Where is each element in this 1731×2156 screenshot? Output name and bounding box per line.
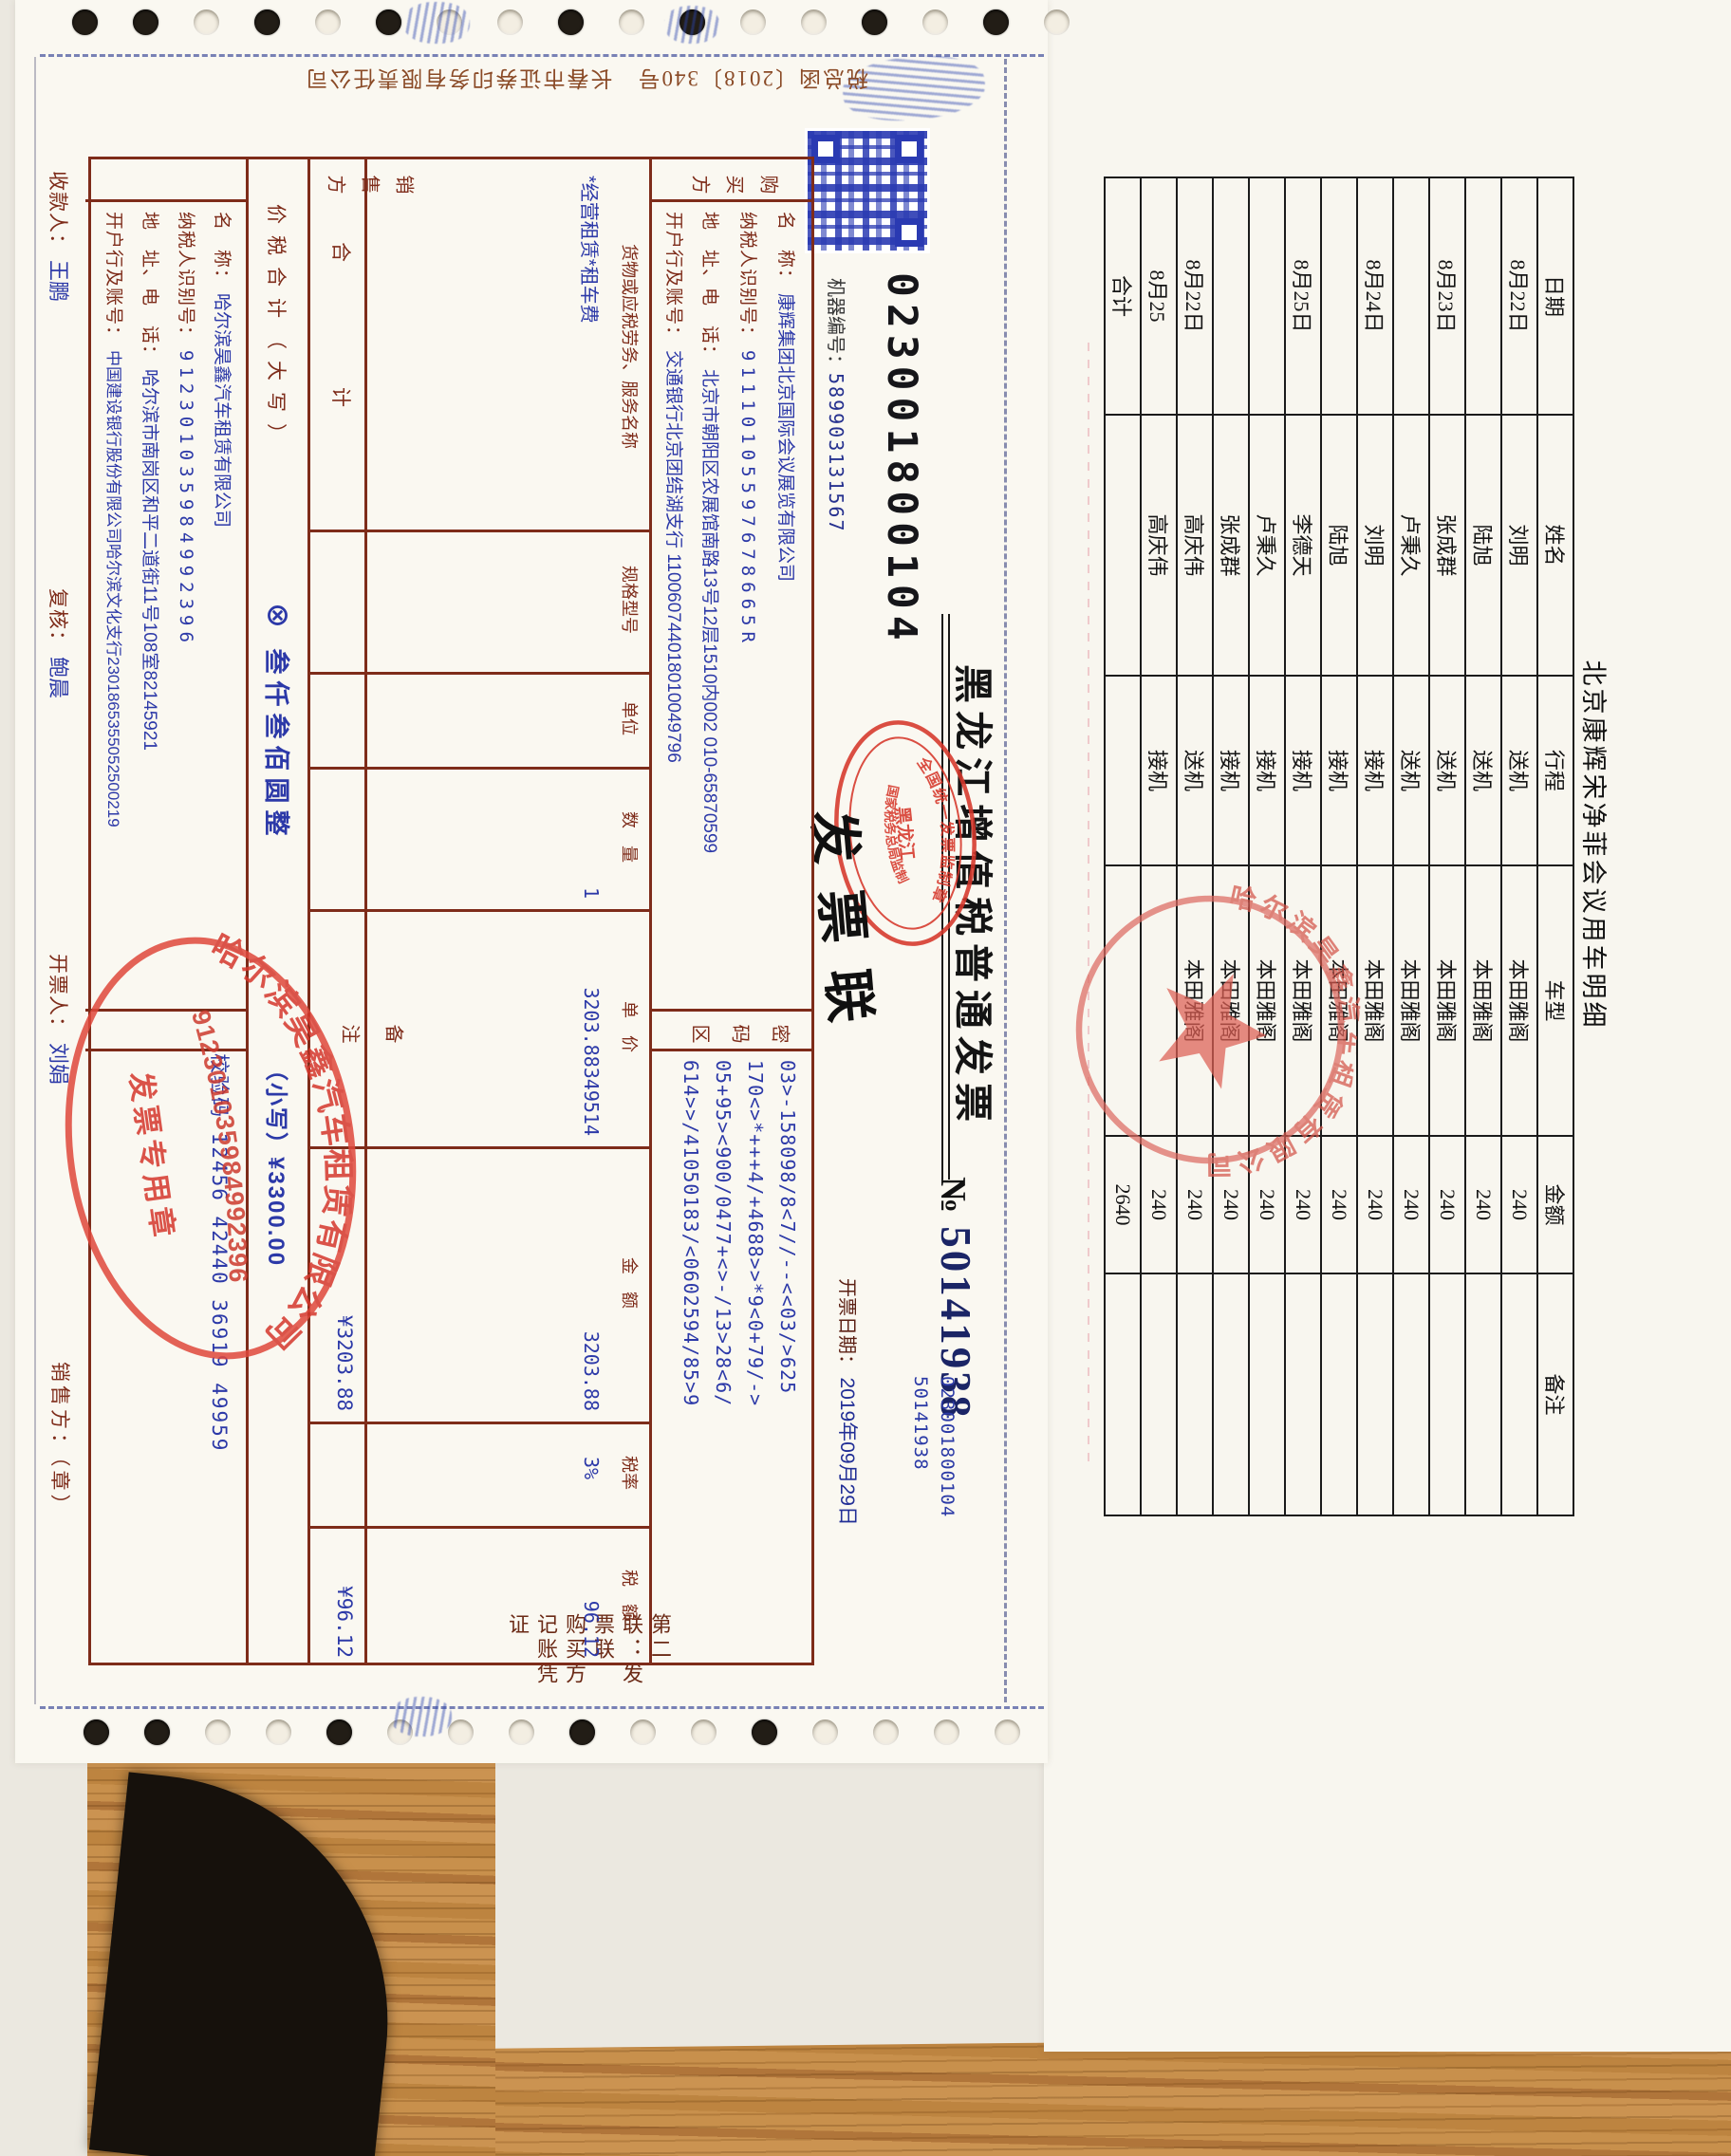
schedule-cell: 陆旭: [1321, 415, 1357, 676]
punch-hole: [983, 9, 1009, 35]
punch-hole: [862, 9, 887, 35]
side-code-2: 50141938: [910, 1376, 931, 1471]
schedule-table: 日期 姓名 行程 车型 金额 备注 8月22日刘明送机本田雅阁240陆旭送机本田…: [1104, 177, 1574, 1516]
buyer-bank: 交通银行北京团结湖支行 110060744018010049796: [663, 350, 683, 763]
seller-bank: 中国建设银行股份有限公司哈尔滨文化支行2301865355052500219: [104, 350, 122, 827]
schedule-cell: 张成群: [1213, 415, 1249, 676]
schedule-header-row: 日期 姓名 行程 车型 金额 备注: [1537, 177, 1573, 1515]
schedule-header-cell: 姓名: [1537, 415, 1573, 676]
punch-hole: [740, 9, 766, 35]
punch-hole: [630, 1719, 656, 1745]
schedule-cell: [1213, 177, 1249, 415]
side-code-1: 023001800104: [937, 1376, 958, 1517]
punch-hole: [254, 9, 280, 35]
schedule-cell: 240: [1429, 1136, 1465, 1273]
schedule-row: 8月22日刘明送机本田雅阁240: [1501, 177, 1537, 1515]
schedule-cell: 李德天: [1285, 415, 1321, 676]
schedule-cell: [1465, 177, 1501, 415]
punch-hole: [934, 1719, 959, 1745]
drawer-name: 刘娟: [47, 1043, 70, 1085]
schedule-cell: 接机: [1321, 676, 1357, 865]
qr-finder-icon: [895, 218, 923, 247]
schedule-cell: 8月22日: [1177, 177, 1213, 415]
punch-hole: [194, 9, 219, 35]
schedule-cell: 送机: [1429, 676, 1465, 865]
company-round-stamp: 哈尔滨昊鑫汽车租赁有限公司: [1049, 868, 1372, 1192]
punch-hole: [266, 1719, 291, 1745]
payee-row: 收款人：王鹏: [45, 171, 75, 302]
items-header-unit: 单位: [618, 671, 642, 766]
ink-smudge: [403, 2, 470, 44]
items-header-rate: 税率: [618, 1421, 642, 1525]
reviewer-name: 鲍晨: [47, 657, 70, 698]
schedule-row: 8月23日张成群送机本田雅阁240: [1429, 177, 1465, 1515]
schedule-cell: [1249, 177, 1285, 415]
grand-total-capital: ⊗ 叁仟叁佰圆整: [260, 603, 297, 843]
schedule-row: 陆旭接机本田雅阁240: [1321, 177, 1357, 1515]
punch-hole: [558, 9, 584, 35]
item-amount: 3203.88: [580, 1145, 603, 1411]
items-header-qty: 数 量: [618, 766, 642, 908]
schedule-cell: 接机: [1357, 676, 1393, 865]
punch-hole: [497, 9, 523, 35]
schedule-cell: 240: [1501, 1136, 1537, 1273]
buyer-bank-label: 开户行及账号：: [663, 212, 683, 344]
schedule-cell: 陆旭: [1465, 415, 1501, 676]
schedule-cell: 8月25日: [1285, 177, 1321, 415]
qr-code: [805, 128, 930, 253]
punch-hole: [922, 9, 948, 35]
punch-hole: [326, 1719, 352, 1745]
seller-bank-label: 开户行及账号：: [103, 212, 123, 344]
seller-name-row: 名 称：哈尔滨昊鑫汽车租赁有限公司: [211, 212, 236, 528]
qr-finder-icon: [895, 135, 923, 163]
schedule-header-cell: 备注: [1537, 1273, 1573, 1515]
schedule-cell: 本田雅阁: [1429, 865, 1465, 1136]
password-line: 614>>/41050183/<0602594/85>9: [675, 1060, 707, 1406]
schedule-cell: [1213, 1273, 1249, 1515]
buyer-name: 康辉集团北京国际会议展览有限公司: [775, 293, 795, 582]
buyer-side-label: 购买方: [671, 164, 785, 196]
items-header-amount: 金 额: [618, 1145, 642, 1421]
schedule-cell: [1141, 1273, 1177, 1515]
schedule-cell: [1393, 1273, 1429, 1515]
tractor-holes-top: [0, 9, 1731, 38]
schedule-row: 8月24日刘明接机本田雅阁240: [1357, 177, 1393, 1515]
buyer-name-label: 名 称：: [775, 212, 795, 288]
schedule-row: 张成群接机本田雅阁240: [1213, 177, 1249, 1515]
punch-hole: [619, 9, 644, 35]
scanned-page: 税总函〔2018〕340号 长春市证券印务有限责任公司 第二联：发票联 购买方记…: [0, 0, 1731, 2156]
ink-smudge: [664, 6, 719, 44]
schedule-cell: 本田雅阁: [1393, 865, 1429, 1136]
punch-hole: [205, 1719, 231, 1745]
dark-object: [89, 1772, 412, 2156]
schedule-cell: [1465, 1273, 1501, 1515]
password-line: 03>-158098/8<7//--<<03/>625: [772, 1060, 804, 1406]
schedule-cell: 8月22日: [1501, 177, 1537, 415]
schedule-row: 陆旭送机本田雅阁240: [1465, 177, 1501, 1515]
schedule-cell: 接机: [1213, 676, 1249, 865]
invoice-landscape: 023001800104 机器编号：589903131567 黑龙江增值税普通发…: [28, 52, 1020, 1703]
schedule-rotated-wrapper: 北京康辉宋净菲会议用车明细 日期 姓名 行程 车型 金额 备注 8: [1099, 169, 1616, 1521]
machine-number-label: 机器编号：: [825, 278, 846, 373]
buyer-address: 北京市朝阳区农展馆南路13号12层1510内002 010-65870599: [699, 369, 719, 853]
issue-date-row: 开票日期： 2019年09月29日: [834, 1278, 863, 1526]
schedule-cell: 卢秉久: [1249, 415, 1285, 676]
punch-hole: [448, 1719, 474, 1745]
schedule-title: 北京康辉宋净菲会议用车明细: [1577, 169, 1614, 1521]
reviewer-row: 复核：鲍晨: [45, 588, 75, 698]
password-line: 05+95><900/0477+<>-/13>28<6/: [707, 1060, 739, 1406]
buyer-address-row: 地 址、电 话：北京市朝阳区农展馆南路13号12层1510内002 010-65…: [698, 212, 724, 853]
schedule-cell: [1177, 1273, 1213, 1515]
item-qty: 1: [580, 766, 603, 899]
schedule-landscape: 北京康辉宋净菲会议用车明细 日期 姓名 行程 车型 金额 备注 8: [1099, 169, 1616, 1521]
punch-hole: [84, 1719, 109, 1745]
schedule-table-body: 8月22日刘明送机本田雅阁240陆旭送机本田雅阁2408月23日张成群送机本田雅…: [1105, 177, 1537, 1515]
schedule-cell: [1105, 415, 1141, 676]
punch-hole: [133, 9, 158, 35]
schedule-cell: [1321, 1273, 1357, 1515]
item-tax: 96.12: [580, 1525, 603, 1658]
invoice-code: 023001800104: [878, 272, 925, 647]
schedule-cell: [1357, 1273, 1393, 1515]
qr-finder-icon: [811, 135, 840, 163]
seller-sign-label: 销售方：（章）: [47, 1362, 75, 1518]
schedule-cell: [1249, 1273, 1285, 1515]
punch-hole: [995, 1719, 1020, 1745]
schedule-cell: [1321, 177, 1357, 415]
wood-desk-bottom: [431, 2035, 1731, 2156]
buyer-address-label: 地 址、电 话：: [699, 212, 719, 363]
schedule-row: 卢秉久接机本田雅阁240: [1249, 177, 1285, 1515]
schedule-cell: 240: [1357, 1136, 1393, 1273]
schedule-cell: 240: [1465, 1136, 1501, 1273]
punch-hole: [315, 9, 341, 35]
total-tax: ¥96.12: [333, 1525, 356, 1658]
schedule-cell: [1429, 1273, 1465, 1515]
grand-total-label: 价税合计（大写）: [263, 204, 291, 455]
schedule-header-cell: 车型: [1537, 865, 1573, 1136]
schedule-row: 8月25高庆伟接机240: [1141, 177, 1177, 1515]
schedule-cell: 接机: [1141, 676, 1177, 865]
schedule-cell: 刘明: [1501, 415, 1537, 676]
buyer-name-row: 名 称：康辉集团北京国际会议展览有限公司: [774, 212, 800, 582]
seller-taxid-row: 纳税人识别号：912301035984992396: [175, 212, 200, 648]
seller-name-label: 名 称：: [212, 212, 232, 288]
reviewer-label: 复核：: [47, 588, 68, 651]
star-icon: [1157, 967, 1273, 1093]
no-symbol: №: [933, 1177, 973, 1213]
issue-date-value: 2019年09月29日: [836, 1377, 858, 1525]
tractor-holes-bottom: [0, 1719, 1731, 1748]
schedule-stamp-wrapper: 哈尔滨昊鑫汽车租赁有限公司: [1049, 868, 1372, 1192]
schedule-cell: 送机: [1501, 676, 1537, 865]
schedule-cell: 送机: [1465, 676, 1501, 865]
perforation-line-bottom: [40, 1706, 1044, 1709]
seller-stamp-taxid: 912301035984992396: [185, 1006, 262, 1288]
schedule-cell: 送机: [1177, 676, 1213, 865]
seller-address-label: 地 址、电 话：: [140, 212, 159, 363]
seller-bank-row: 开户行及账号：中国建设银行股份有限公司哈尔滨文化支行23018653550525…: [102, 212, 128, 827]
schedule-cell: 本田雅阁: [1501, 865, 1537, 1136]
punch-hole: [752, 1719, 777, 1745]
buyer-taxid: 91110105597678665R: [737, 350, 758, 648]
schedule-row: 8月25日李德天接机本田雅阁240: [1285, 177, 1321, 1515]
drawer-row: 开票人：刘娟: [45, 954, 75, 1085]
seller-taxid: 912301035984992396: [176, 350, 196, 648]
schedule-cell: 高庆伟: [1177, 415, 1213, 676]
seller-stamp: 哈尔滨昊鑫汽车租赁有限公司 912301035984992396 发票专用章: [24, 901, 398, 1395]
punch-hole: [1044, 9, 1070, 35]
punch-hole: [569, 1719, 595, 1745]
buyer-bank-row: 开户行及账号：交通银行北京团结湖支行 110060744018010049796: [662, 212, 688, 763]
item-price: 3203.88349514: [580, 908, 603, 1136]
schedule-cell: [1105, 1273, 1141, 1515]
schedule-cell: [1105, 676, 1141, 865]
item-rate: 3%: [580, 1421, 603, 1515]
schedule-cell: 送机: [1393, 676, 1429, 865]
punch-hole: [376, 9, 401, 35]
punch-hole: [873, 1719, 899, 1745]
invoice-rotated-wrapper: 023001800104 机器编号：589903131567 黑龙江增值税普通发…: [28, 52, 1020, 1703]
schedule-cell: 接机: [1249, 676, 1285, 865]
password-area: 03>-158098/8<7//--<<03/>625 170<>*+++4/+…: [675, 1060, 804, 1406]
seller-address-row: 地 址、电 话：哈尔滨市南岗区和平二道街11号108室82145921: [139, 212, 164, 751]
schedule-cell: 8月23日: [1429, 177, 1465, 415]
schedule-cell: 高庆伟: [1141, 415, 1177, 676]
seller-side-label: 销售方: [307, 164, 420, 196]
schedule-cell: 240: [1393, 1136, 1429, 1273]
schedule-header-cell: 日期: [1537, 177, 1573, 415]
schedule-cell: 卢秉久: [1393, 415, 1429, 676]
svg-text:912301035984992396: 912301035984992396: [185, 1006, 262, 1288]
schedule-row: 8月22日高庆伟送机本田雅阁240: [1177, 177, 1213, 1515]
schedule-cell: [1285, 1273, 1321, 1515]
schedule-cell: 合计: [1105, 177, 1141, 415]
password-side-label: 密码区: [669, 1013, 792, 1046]
punch-hole: [72, 9, 98, 35]
machine-number-value: 589903131567: [825, 373, 847, 533]
punch-hole: [801, 9, 827, 35]
items-header-tax: 税 额: [618, 1525, 642, 1665]
schedule-cell: 张成群: [1429, 415, 1465, 676]
schedule-row: 合计2640: [1105, 177, 1141, 1515]
wood-desk-bottom-left: [87, 1757, 495, 2156]
drawer-label: 开票人：: [47, 954, 68, 1037]
schedule-cell: 8月25: [1141, 177, 1177, 415]
items-header-name: 货物或应税劳务、服务名称: [618, 176, 642, 517]
payee-label: 收款人：: [47, 171, 68, 254]
schedule-cell: 8月24日: [1357, 177, 1393, 415]
seller-address: 哈尔滨市南岗区和平二道街11号108室82145921: [140, 369, 159, 751]
seller-name: 哈尔滨昊鑫汽车租赁有限公司: [212, 293, 232, 528]
schedule-header-cell: 金额: [1537, 1136, 1573, 1273]
punch-hole: [691, 1719, 717, 1745]
payee-name: 王鹏: [47, 260, 70, 302]
schedule-header-cell: 行程: [1537, 676, 1573, 865]
items-header-price: 单 价: [618, 908, 642, 1145]
password-line: 170<>*+++4/+4688>>*9<0+79/->: [739, 1060, 772, 1406]
punch-hole: [812, 1719, 838, 1745]
schedule-cell: [1393, 177, 1429, 415]
punch-hole: [144, 1719, 170, 1745]
total-label: 合 计: [327, 242, 356, 436]
seller-stamp-caption: 发票专用章: [123, 1069, 180, 1243]
schedule-cell: [1501, 1273, 1537, 1515]
issue-date-label: 开票日期：: [836, 1278, 857, 1373]
item-name: *经营租赁*租车费: [577, 176, 605, 324]
schedule-cell: 刘明: [1357, 415, 1393, 676]
buyer-taxid-row: 纳税人识别号：91110105597678665R: [736, 212, 762, 648]
schedule-row: 卢秉久送机本田雅阁240: [1393, 177, 1429, 1515]
machine-number-row: 机器编号：589903131567: [824, 278, 851, 533]
buyer-taxid-label: 纳税人识别号：: [737, 212, 757, 344]
punch-hole: [509, 1719, 534, 1745]
schedule-cell: 本田雅阁: [1465, 865, 1501, 1136]
seller-taxid-label: 纳税人识别号：: [176, 212, 195, 344]
schedule-cell: 接机: [1285, 676, 1321, 865]
items-header-spec: 规格型号: [618, 529, 642, 671]
